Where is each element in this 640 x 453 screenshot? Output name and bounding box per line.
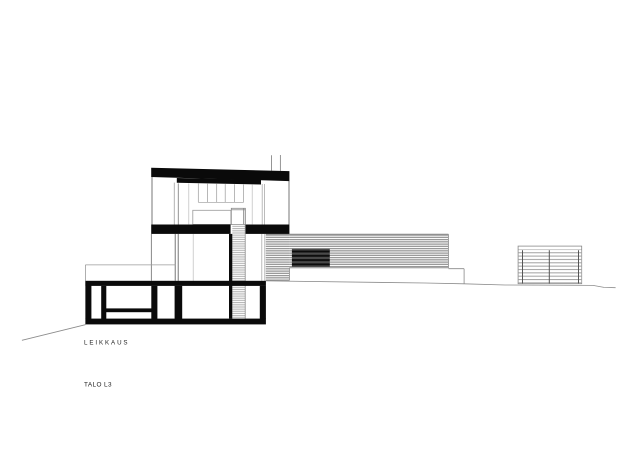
svg-text:TALO L3: TALO L3 <box>84 382 112 389</box>
svg-text:LEIKKAUS: LEIKKAUS <box>84 339 129 346</box>
